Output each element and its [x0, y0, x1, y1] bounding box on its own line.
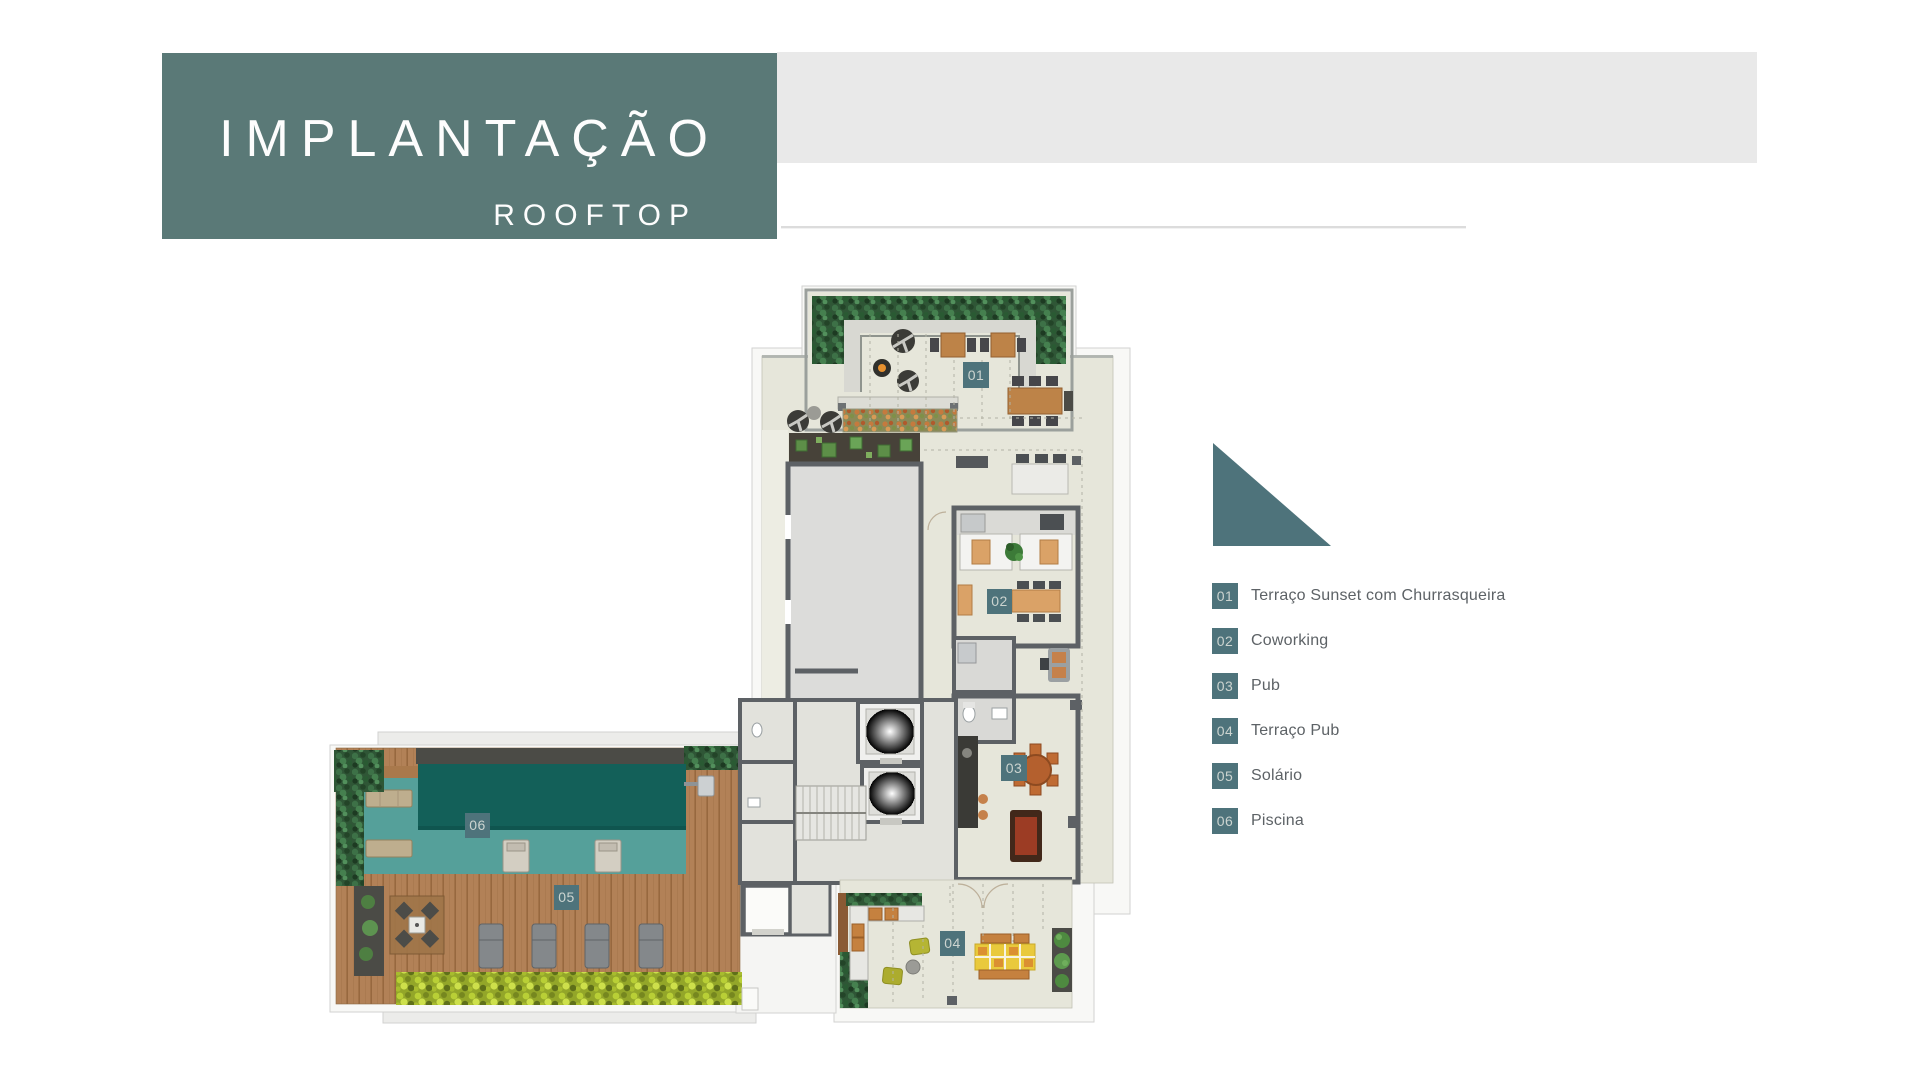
svg-text:03: 03 [1006, 760, 1023, 776]
svg-text:01: 01 [968, 367, 985, 383]
legend-badge: 04 [1212, 718, 1238, 744]
legend-badge: 05 [1212, 763, 1238, 789]
bathrooms [954, 638, 1014, 742]
legend-badge: 02 [1212, 628, 1238, 654]
yellow-lounge [975, 934, 1035, 979]
pergola-seating [390, 896, 444, 954]
legend-item: 02 Coworking [1212, 628, 1506, 654]
plan-badge-06: 06 [465, 813, 490, 838]
legend-label: Pub [1251, 677, 1280, 695]
pouf [882, 967, 903, 985]
legend-triangle [1213, 443, 1331, 546]
core-nook [742, 988, 758, 1010]
legend-item: 04 Terraço Pub [1212, 718, 1506, 744]
legend-item: 01 Terraço Sunset com Churrasqueira [1212, 583, 1506, 609]
plan-badge-03: 03 [1001, 755, 1027, 781]
elevators [858, 702, 922, 825]
legend-item: 05 Solário [1212, 763, 1506, 789]
legend-label: Piscina [1251, 812, 1304, 830]
legend-badge: 06 [1212, 808, 1238, 834]
floor-plan: 01 02 03 04 05 06 [0, 0, 1920, 1080]
stairs [796, 786, 866, 840]
svg-text:05: 05 [558, 889, 575, 905]
svg-text:04: 04 [944, 935, 961, 951]
plan-badge-04: 04 [940, 931, 965, 956]
page: IMPLANTAÇÃO ROOFTOP [0, 0, 1920, 1080]
legend-item: 03 Pub [1212, 673, 1506, 699]
core-room-sw [744, 886, 790, 934]
terrace-04-planter [1052, 928, 1072, 992]
plan-badge-05: 05 [554, 885, 579, 910]
side-table [906, 960, 920, 974]
pouf [909, 938, 930, 955]
legend-item: 06 Piscina [1212, 808, 1506, 834]
legend: 01 Terraço Sunset com Churrasqueira 02 C… [1212, 583, 1506, 834]
yellow-hedge [396, 972, 742, 1005]
legend-label: Terraço Pub [1251, 722, 1339, 740]
svg-text:06: 06 [469, 817, 486, 833]
svg-text:02: 02 [991, 593, 1008, 609]
legend-label: Solário [1251, 767, 1302, 785]
big-room [785, 464, 921, 706]
legend-badge: 03 [1212, 673, 1238, 699]
pool-table [1010, 810, 1042, 862]
legend-label: Coworking [1251, 632, 1328, 650]
plan-badge-01: 01 [963, 362, 989, 388]
plan-badge-02: 02 [987, 589, 1012, 614]
legend-badge: 01 [1212, 583, 1238, 609]
legend-label: Terraço Sunset com Churrasqueira [1251, 587, 1506, 605]
